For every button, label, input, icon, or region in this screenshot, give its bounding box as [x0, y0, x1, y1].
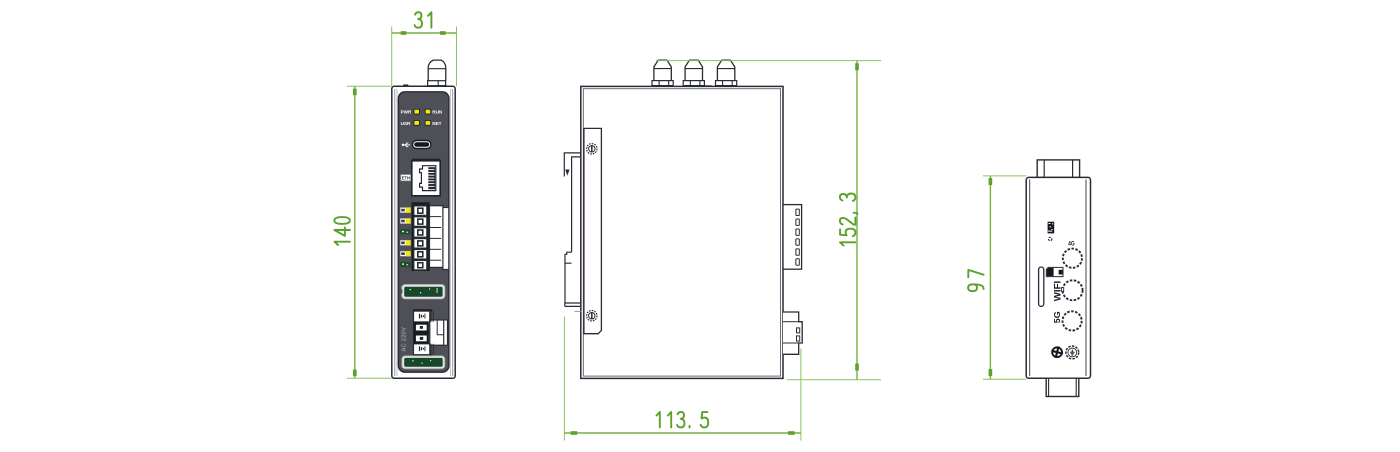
svg-text:5G: 5G: [1053, 311, 1062, 323]
svg-text:USR: USR: [401, 121, 411, 126]
svg-text:4G: 4G: [1068, 242, 1075, 248]
svg-text:ETH: ETH: [402, 176, 410, 181]
svg-text:AC 220V: AC 220V: [401, 327, 407, 352]
svg-text:PWR: PWR: [401, 110, 412, 115]
svg-text:WIFI: WIFI: [1052, 281, 1062, 302]
svg-text:RUN: RUN: [432, 110, 443, 115]
svg-text:NET: NET: [432, 121, 441, 126]
